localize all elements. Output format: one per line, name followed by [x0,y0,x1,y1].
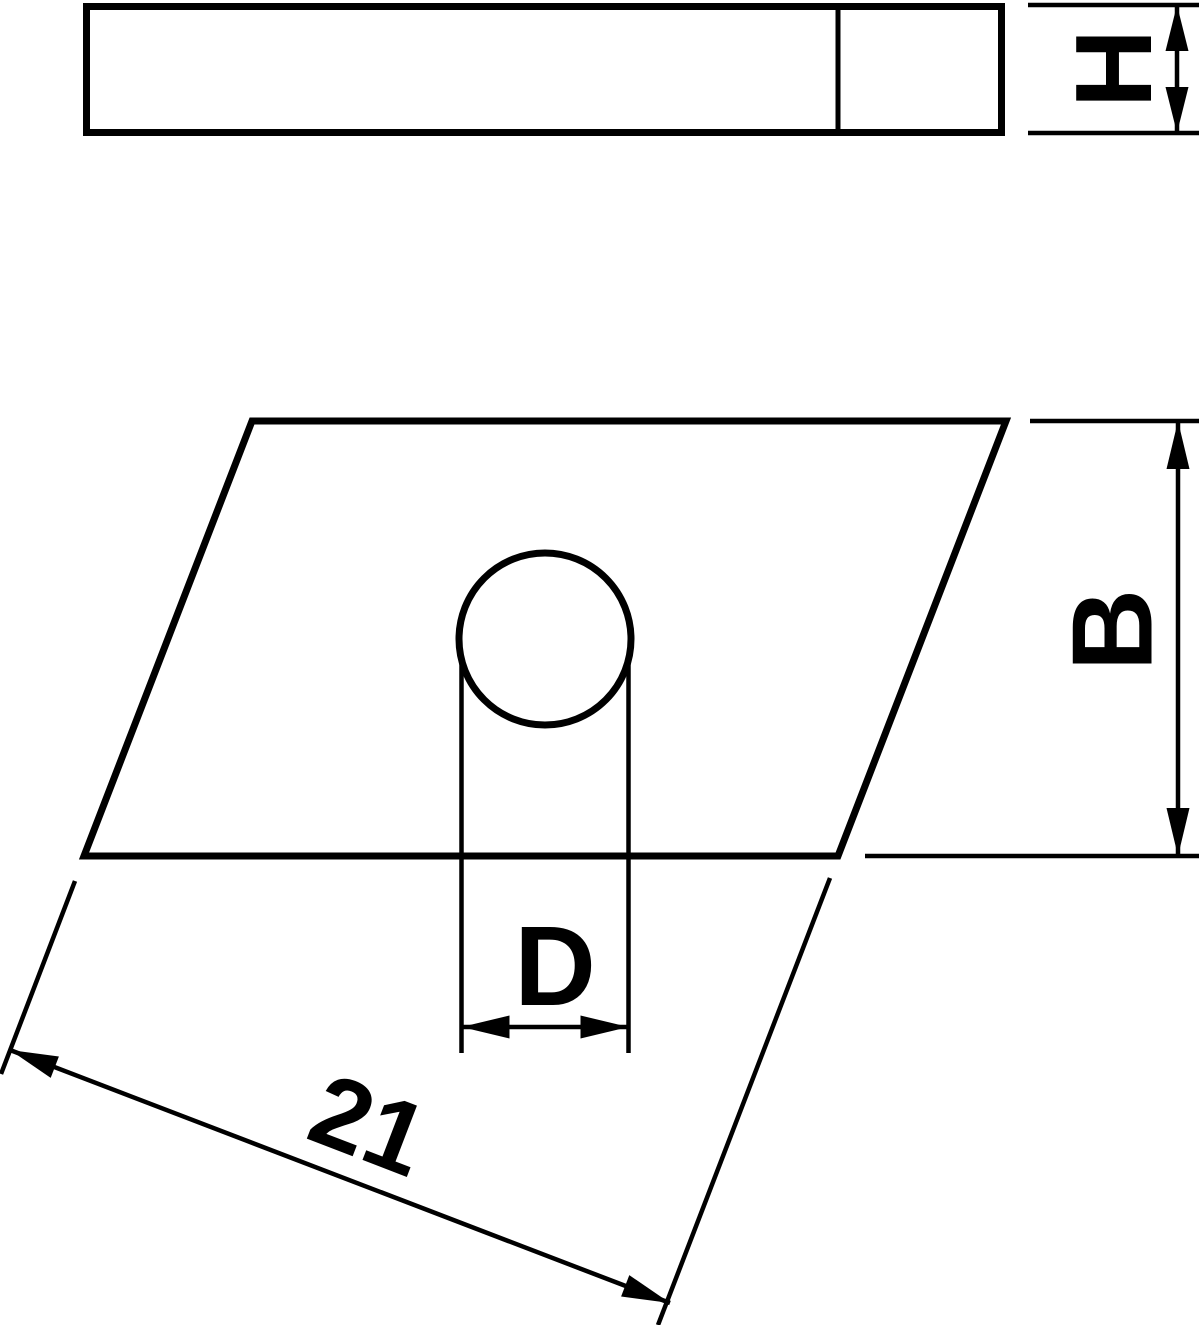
side-view [87,3,1002,136]
technical-drawing: H B D [0,0,1201,1325]
b-dimension-label: B [1050,589,1177,671]
b-arrowhead-up [1167,421,1190,469]
length-arrowhead-left [10,1050,59,1078]
d-dimension-label: D [514,903,596,1029]
hole-circle [459,553,631,725]
side-view-outline [87,7,1002,133]
length-dimension-label: 21 [296,1051,443,1198]
h-dimension-label: H [1053,29,1175,108]
length-arrowhead-right [621,1275,670,1303]
drawing-canvas: H B D [0,0,1201,1325]
dimension-21: 21 [1,878,830,1325]
top-view [84,421,1006,856]
length-extension-line-right [658,878,830,1325]
d-arrowhead-left [462,1016,510,1039]
dimension-H: H [1028,5,1199,133]
length-extension-line-left [1,881,75,1074]
b-arrowhead-down [1167,808,1190,856]
top-view-outline [84,421,1006,856]
dimension-B: B [865,421,1199,856]
